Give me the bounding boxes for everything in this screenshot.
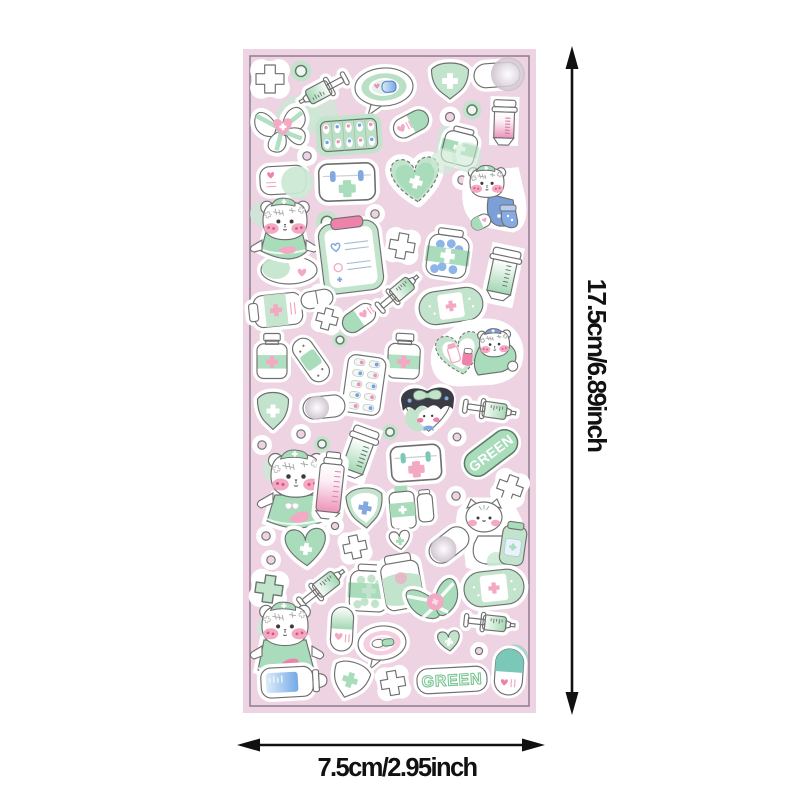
svg-text:17.5cm/6.89inch: 17.5cm/6.89inch [582,279,612,452]
svg-text:GREEN: GREEN [421,671,483,691]
svg-text:7.5cm/2.95inch: 7.5cm/2.95inch [317,754,476,782]
